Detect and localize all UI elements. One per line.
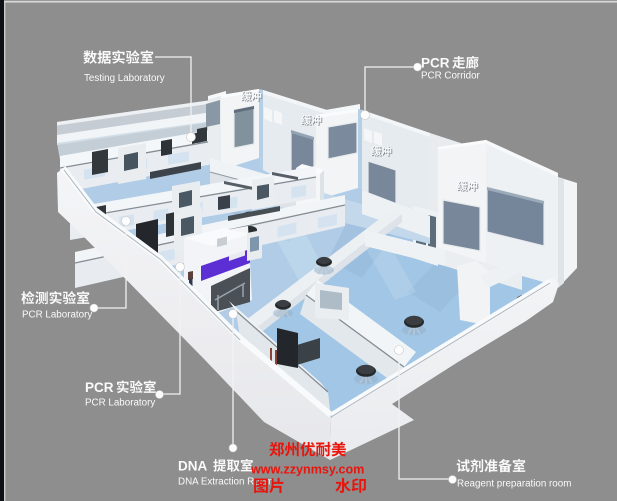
svg-text:www.zzynmsy.com: www.zzynmsy.com: [250, 463, 364, 477]
svg-text:PCR Corridor: PCR Corridor: [421, 71, 481, 82]
svg-text:PCR Laboratory: PCR Laboratory: [22, 310, 92, 321]
svg-text:Testing Laboratory: Testing Laboratory: [84, 73, 165, 84]
svg-text:PCR: PCR: [85, 380, 114, 395]
svg-text:Reagent preparation room: Reagent preparation room: [457, 479, 571, 490]
svg-text:PCR: PCR: [421, 56, 450, 71]
svg-text:PCR Laboratory: PCR Laboratory: [85, 398, 155, 409]
svg-text:DNA: DNA: [178, 459, 207, 474]
